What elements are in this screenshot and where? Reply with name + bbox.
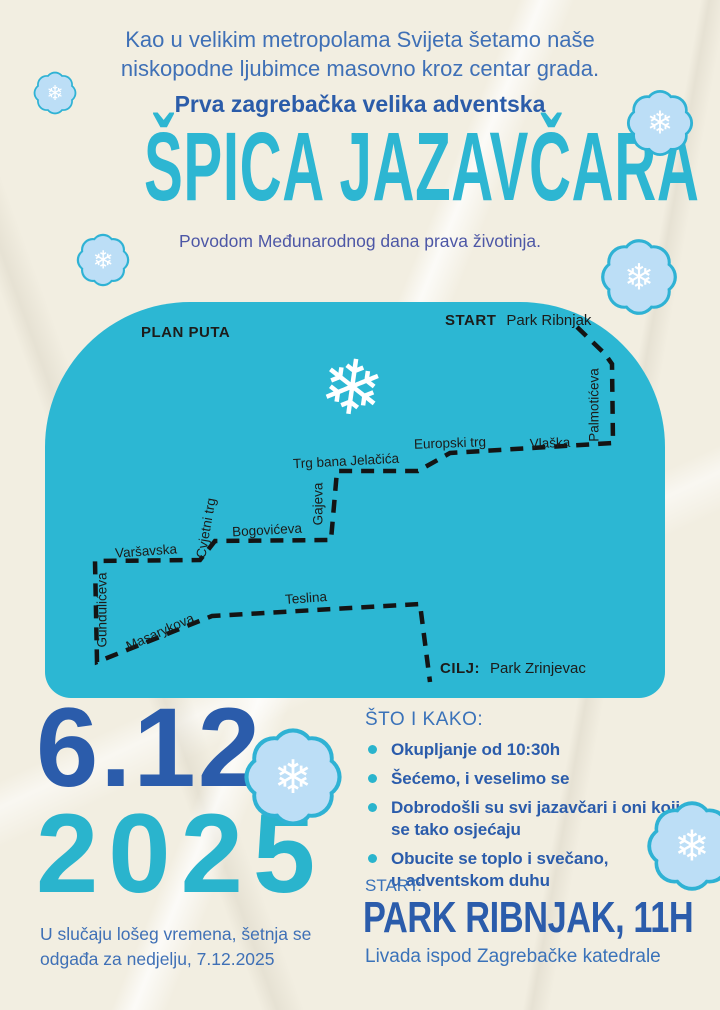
snowflake-badge: ❄: [33, 71, 77, 115]
svg-text:❄: ❄: [274, 750, 313, 804]
list-item-text: Okupljanje od 10:30h: [391, 739, 560, 761]
list-item-text: Dobrodošli su svi jazavčari i oni koji s…: [391, 797, 680, 841]
start-place: PARK RIBNJAK, 11H: [363, 893, 693, 943]
list-item-text: Šećemo, i veselimo se: [391, 768, 569, 790]
street-label-vlaska: Vlaška: [529, 435, 570, 451]
start-note: Livada ispod Zagrebačke katedrale: [365, 946, 661, 968]
bullet-dot: [368, 774, 377, 783]
bullet-dot: [368, 854, 377, 863]
snowflake-badge: ❄: [646, 800, 720, 892]
bullet-dot: [368, 803, 377, 812]
svg-text:❄: ❄: [647, 106, 673, 142]
finish-value: Park Zrinjevac: [490, 660, 586, 677]
street-label-gunduliceva: Gundulićeva: [95, 572, 110, 647]
details-heading: ŠTO I KAKO:: [365, 709, 483, 731]
intro-text: Kao u velikim metropolama Svijeta šetamo…: [0, 26, 720, 83]
event-poster: ❄ ❄ ❄ ❄ ❄ ❄ Kao u velikim metropolama Sv…: [0, 0, 720, 1010]
street-label-teslina: Teslina: [285, 589, 328, 607]
list-item: Šećemo, i veselimo se: [365, 768, 710, 790]
poster-title: ŠPICA JAZAVČARA: [144, 118, 576, 215]
bullet-dot: [368, 745, 377, 754]
start-value: Park Ribnjak: [506, 312, 591, 329]
route-start: STARTPark Ribnjak: [445, 312, 591, 329]
weather-note: U slučaju lošeg vremena, šetnja se odgađ…: [40, 922, 311, 973]
snowflake-badge: ❄: [626, 89, 694, 157]
snowflake-badge: ❄: [243, 727, 343, 827]
street-label-palmoticeva: Palmotićeva: [587, 368, 602, 442]
street-label-gajeva: Gajeva: [311, 483, 326, 526]
route-map: ❄ PLAN PUTA STARTPark Ribnjak CILJ:Park …: [45, 302, 665, 698]
snowflake-badge: ❄: [76, 233, 130, 287]
svg-text:❄: ❄: [674, 821, 710, 871]
map-heading: PLAN PUTA: [141, 324, 230, 341]
svg-text:❄: ❄: [93, 246, 114, 275]
street-label-europski-trg: Europski trg: [414, 434, 487, 452]
svg-text:❄: ❄: [624, 255, 654, 298]
snowflake-badge: ❄: [600, 238, 678, 316]
finish-label: CILJ:: [440, 660, 480, 677]
snowflake-icon: ❄: [315, 346, 389, 430]
svg-text:❄: ❄: [46, 81, 63, 105]
list-item: Okupljanje od 10:30h: [365, 739, 710, 761]
route-finish: CILJ:Park Zrinjevac: [440, 660, 586, 677]
list-item-text: Obucite se toplo i svečano, u adventskom…: [391, 848, 608, 892]
start-label: START: [445, 312, 496, 329]
